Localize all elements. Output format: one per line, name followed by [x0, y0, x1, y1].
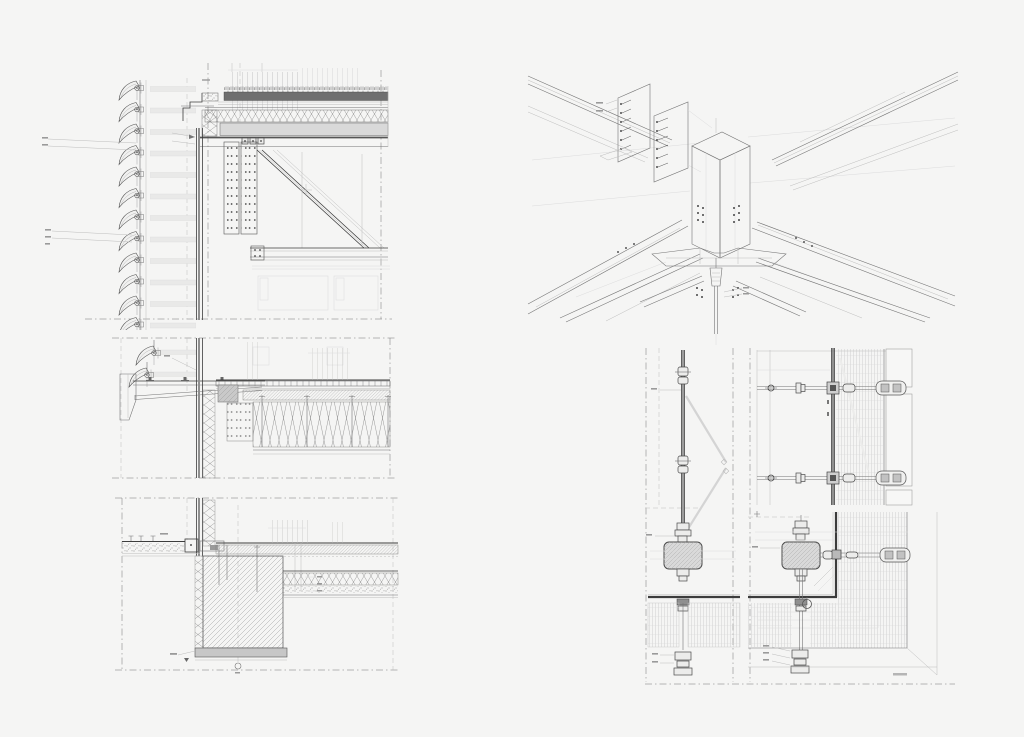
corner-glazing-plan-top [757, 348, 912, 505]
tension-rod [715, 286, 718, 334]
background-tie-lines [532, 118, 955, 297]
green-roof-substrate [224, 92, 388, 101]
louver-bay-bars [150, 80, 196, 330]
i-beam-lower-left [528, 220, 703, 322]
spider-arm-row-1 [757, 381, 906, 395]
bolted-end-plates [596, 84, 712, 182]
panel-base-foundation-section [115, 498, 398, 674]
truss-connection [224, 138, 388, 260]
mullion-base-bracket-left [652, 652, 692, 675]
mullion-plan-detail [646, 350, 740, 675]
corner-glazing-plan-bottom [748, 512, 937, 676]
batt-insulation [253, 402, 390, 447]
facade-column-left [646, 523, 736, 581]
suspended-ceiling [252, 266, 390, 310]
roof-slab [220, 123, 388, 136]
floor-buildup [216, 380, 391, 454]
footing [170, 648, 287, 662]
drawing-sheet [0, 0, 1024, 737]
lower-floor-slab [283, 571, 398, 598]
panel-steel-node-axonometric [528, 72, 958, 345]
turf-ticks [224, 87, 388, 93]
truss-diagonal [257, 150, 384, 248]
exterior-ground [122, 533, 200, 556]
drawing-canvas [0, 0, 1024, 737]
micro-caption-mark [893, 673, 907, 676]
louver-blades [118, 80, 154, 330]
spider-arm-row-2 [757, 471, 906, 485]
rigid-insulation [205, 110, 388, 122]
roof-buildup [200, 86, 388, 147]
panel-roof-parapet-section [42, 63, 392, 330]
i-beam-upper-left [528, 76, 672, 162]
metal-deck [216, 381, 390, 386]
i-beam-lower-right [752, 222, 955, 322]
foundation-wall [195, 556, 283, 648]
splice-plate-1 [224, 142, 239, 234]
operable-vent-swing [686, 396, 729, 532]
panel-floor-edge-section [112, 338, 395, 478]
louver-array [118, 80, 196, 330]
perforated-panel [227, 403, 253, 441]
wall-section [197, 128, 203, 320]
corner-spandrel-hatch [838, 512, 907, 648]
i-beam-bottom-stubs [640, 276, 806, 316]
gusset-and-rod [652, 248, 786, 345]
splice-plate-2 [241, 142, 257, 234]
interior-floor [216, 543, 398, 557]
screed [243, 390, 390, 400]
bottom-chord [250, 246, 388, 260]
panel-facade-plan-details [645, 348, 955, 684]
winged-gusset-plate [652, 248, 786, 266]
box-node [692, 118, 750, 298]
spandrel-hatch-left [648, 603, 740, 650]
i-beam-upper-right [772, 72, 958, 190]
mullion-base-bracket-right [763, 645, 809, 673]
